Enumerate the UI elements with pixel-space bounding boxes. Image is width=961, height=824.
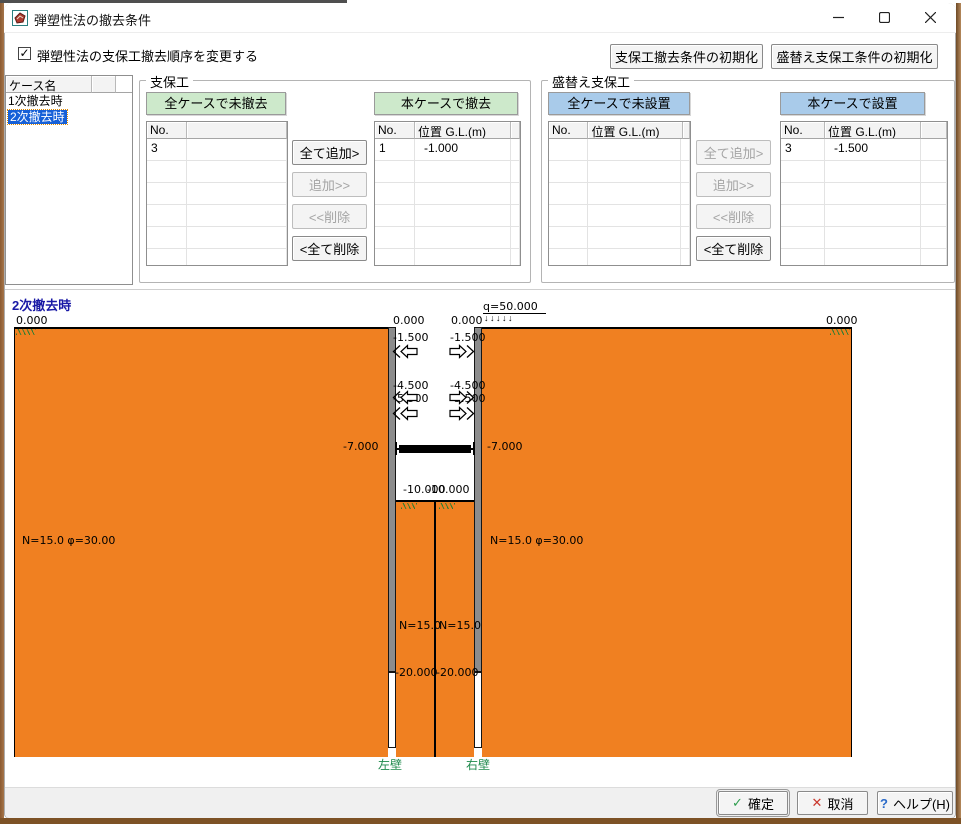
reshoring-remove-all-button[interactable]: <全て削除: [696, 236, 771, 261]
col-position[interactable]: 位置 G.L.(m): [825, 122, 921, 139]
wall-tip-label: -20.000: [395, 666, 437, 679]
section-divider: [5, 289, 955, 290]
cancel-button[interactable]: ✕ 取消: [797, 791, 868, 815]
minimize-icon: [833, 12, 844, 23]
gl-label: 0.000: [451, 314, 483, 327]
reshoring-not-installed-table[interactable]: No. 位置 G.L.(m): [548, 121, 691, 266]
case-list: ケース名 1次撤去時 2次撤去時: [5, 75, 133, 285]
check-icon: ✓: [732, 795, 743, 811]
level-label: -1.500: [450, 331, 485, 344]
confirm-button[interactable]: ✓ 確定: [718, 791, 788, 815]
shoring-remove-all-button[interactable]: <全て削除: [292, 236, 367, 261]
case-name-column-header[interactable]: ケース名: [6, 76, 92, 93]
shoring-group-title: 支保工: [146, 72, 193, 91]
shoring-removed-table[interactable]: No. 位置 G.L.(m) 1 -1.000: [374, 121, 521, 266]
case-list-header-spacer: [92, 76, 116, 93]
strut-end-tick: [473, 442, 475, 455]
reshoring-group-title: 盛替え支保工: [548, 72, 634, 91]
minimize-button[interactable]: [815, 4, 861, 31]
ground-hatch-icon: [401, 503, 417, 509]
table-row[interactable]: 3 -1.500: [781, 139, 947, 161]
col-no[interactable]: No.: [147, 122, 187, 139]
level-label: -1.500: [393, 331, 428, 344]
reshoring-add-button: 追加>>: [696, 172, 771, 197]
soil-property-label: N=15.0 φ=30.00: [22, 534, 115, 547]
close-icon: [925, 12, 936, 23]
close-button[interactable]: [907, 4, 953, 31]
surcharge-arrows-icon: ↓↓↓↓↓: [484, 313, 514, 323]
diagram-case-title: 2次撤去時: [12, 295, 71, 314]
reshoring-remove-button: <<削除: [696, 204, 771, 229]
shoring-removed-banner: 本ケースで撤去: [374, 92, 518, 115]
soil-column-label: N=15.0: [399, 619, 441, 632]
support-arrow-left-icon: [391, 406, 419, 421]
left-wall-label: 左壁: [378, 756, 402, 773]
strut-end-tick: [395, 442, 397, 455]
shoring-add-button: 追加>>: [292, 172, 367, 197]
change-order-checkbox-label: 弾塑性法の支保工撤去順序を変更する: [37, 46, 258, 65]
ground-hatch-icon: [439, 503, 455, 509]
table-row[interactable]: 1 -1.000: [375, 139, 520, 161]
shoring-not-removed-table[interactable]: No. 3: [146, 121, 288, 266]
strut-bar: [399, 445, 471, 453]
case-list-header: ケース名: [6, 76, 132, 93]
left-wall-embedded-tip: [388, 672, 396, 748]
init-reshoring-conditions-button[interactable]: 盛替え支保工条件の初期化: [771, 44, 938, 69]
change-order-checkbox[interactable]: ✓: [18, 47, 31, 60]
x-icon: ✕: [812, 795, 823, 811]
maximize-button[interactable]: [861, 4, 907, 31]
surcharge-label: q=50.000: [483, 300, 546, 314]
shoring-add-all-button[interactable]: 全て追加>: [292, 140, 367, 165]
reshoring-installed-table[interactable]: No. 位置 G.L.(m) 3 -1.500: [780, 121, 948, 266]
gl-label: 0.000: [16, 314, 48, 327]
reshoring-add-all-button: 全て追加>: [696, 140, 771, 165]
excavation-bottom-label: -10.000: [427, 483, 469, 496]
col-position[interactable]: 位置 G.L.(m): [588, 122, 683, 139]
col-no[interactable]: No.: [549, 122, 588, 139]
window-title: 弾塑性法の撤去条件: [34, 10, 151, 29]
strut-level-label: -7.000: [487, 440, 522, 453]
support-arrow-left-icon: [391, 344, 419, 359]
case-item-1[interactable]: 1次撤去時: [6, 93, 132, 109]
soil-column-label: N=15.0: [439, 619, 481, 632]
right-wall-label: 右壁: [466, 756, 490, 773]
support-arrow-right-icon: [448, 344, 476, 359]
table-row[interactable]: 3: [147, 139, 287, 161]
soil-property-label: N=15.0 φ=30.00: [490, 534, 583, 547]
question-icon: ?: [880, 796, 888, 811]
background-right-edge: [956, 3, 961, 824]
screen: 弾塑性法の撤去条件 ✓ 弾塑性法の支保工撤去順序を変更する 支保工撤去条件の初期…: [0, 0, 961, 824]
ground-hatch-icon: [16, 329, 36, 335]
case-item-2-selected[interactable]: 2次撤去時: [6, 109, 132, 125]
support-arrow-right-icon: [448, 406, 476, 421]
ground-hatch-icon: [830, 329, 850, 335]
wall-tip-label: -20.000: [436, 666, 478, 679]
background-bottom-edge: [0, 818, 961, 824]
app-icon: [12, 10, 28, 26]
right-wall-embedded-tip: [474, 672, 482, 748]
shoring-not-removed-banner: 全ケースで未撤去: [146, 92, 286, 115]
support-arrow-left-icon: [391, 390, 419, 405]
help-button[interactable]: ? ヘルプ(H): [877, 791, 953, 815]
maximize-icon: [879, 12, 890, 23]
shoring-remove-button: <<削除: [292, 204, 367, 229]
gl-label: 0.000: [393, 314, 425, 327]
gl-label: 0.000: [826, 314, 858, 327]
col-position[interactable]: 位置 G.L.(m): [415, 122, 511, 139]
support-arrow-right-icon: [448, 390, 476, 405]
col-no[interactable]: No.: [781, 122, 825, 139]
strut-level-label: -7.000: [343, 440, 378, 453]
reshoring-not-installed-banner: 全ケースで未設置: [548, 92, 690, 115]
init-shoring-conditions-button[interactable]: 支保工撤去条件の初期化: [610, 44, 763, 69]
col-no[interactable]: No.: [375, 122, 415, 139]
reshoring-installed-banner: 本ケースで設置: [780, 92, 925, 115]
col-position[interactable]: [187, 122, 287, 139]
